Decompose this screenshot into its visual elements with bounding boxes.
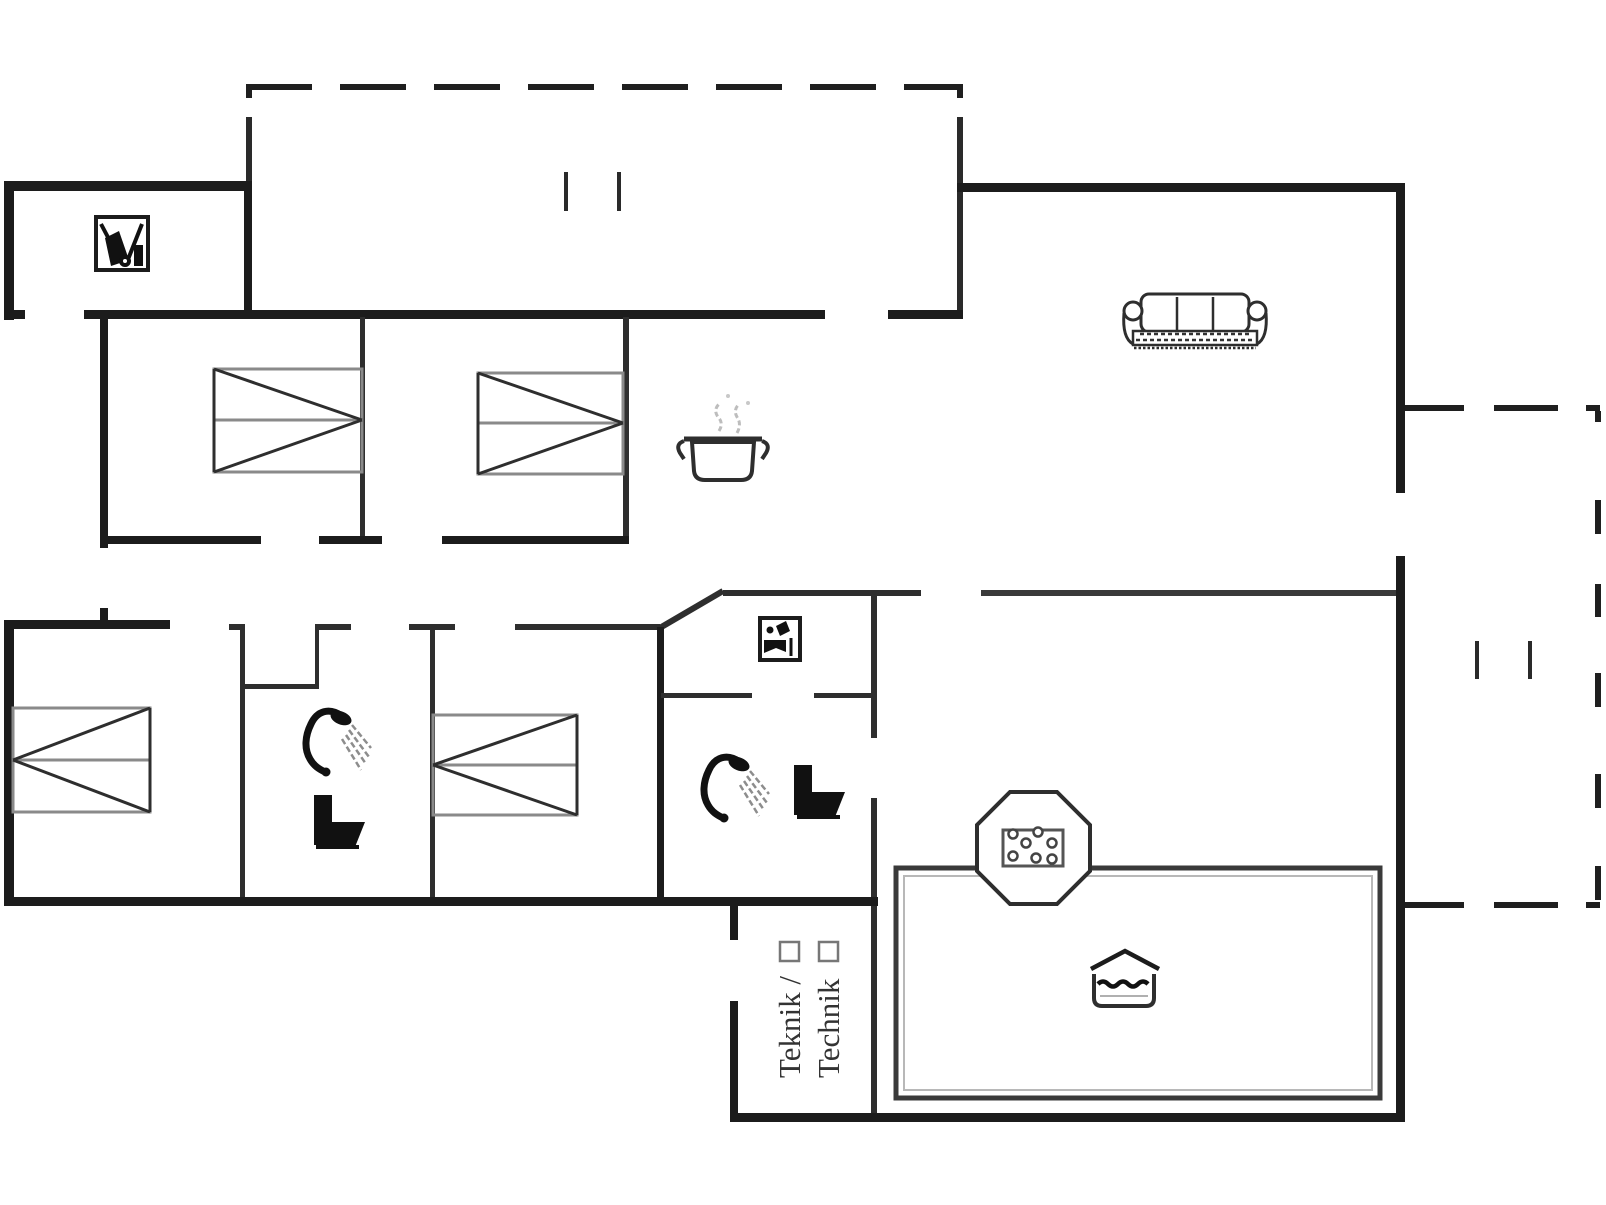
svg-text:Teknik /: Teknik / [772, 976, 807, 1078]
svg-text:Technik: Technik [811, 978, 846, 1078]
